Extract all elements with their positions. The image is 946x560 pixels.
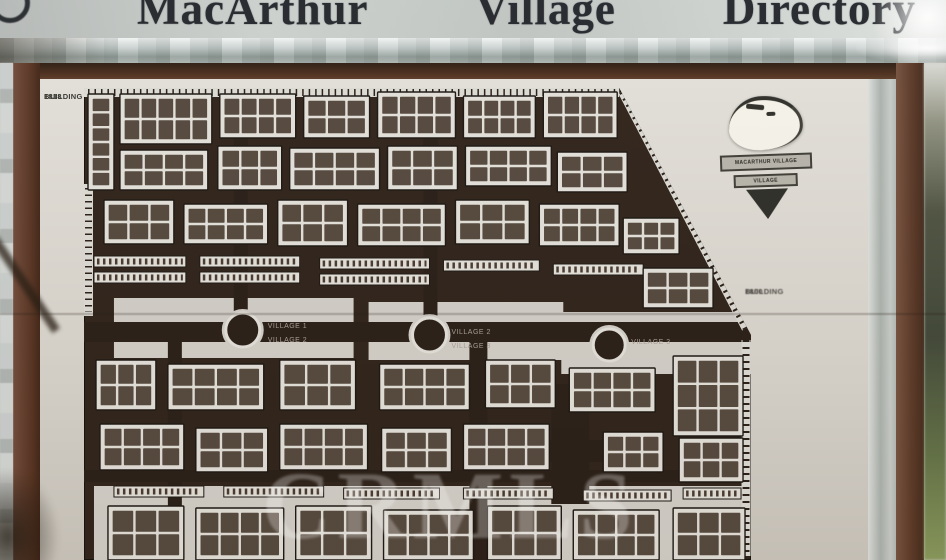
building-unit (136, 386, 151, 405)
building-unit (548, 116, 562, 133)
village-label: VILLAGE 3 (451, 343, 490, 350)
building-unit (527, 429, 544, 446)
label-1818-word: BUILDING (44, 92, 83, 102)
building-unit (418, 97, 433, 114)
emblem-banner-bottom: VILLAGE (734, 173, 798, 188)
building-unit (159, 99, 174, 118)
building-unit (562, 226, 578, 241)
building-unit (193, 120, 208, 139)
building-unit (699, 513, 718, 533)
building-unit (633, 373, 650, 389)
building-unit (125, 155, 143, 169)
sign-frame-right (896, 63, 924, 560)
village-label: VILLAGE 3 (631, 339, 670, 346)
building-unit (510, 167, 527, 181)
building-unit (201, 451, 220, 467)
building-unit (608, 437, 623, 451)
building-unit (384, 388, 402, 405)
building-unit (201, 513, 219, 533)
building-unit (222, 169, 239, 185)
building-unit (224, 117, 239, 133)
building-unit (720, 385, 739, 407)
building-unit (548, 97, 562, 114)
building-unit (482, 223, 502, 239)
building-unit (490, 365, 509, 383)
building-unit (699, 361, 718, 383)
building-unit (307, 365, 328, 384)
building-unit (165, 155, 183, 169)
building-unit (118, 386, 133, 405)
building-unit (678, 385, 697, 407)
building-unit (276, 117, 291, 133)
building-unit (159, 511, 180, 532)
building-unit (185, 155, 203, 169)
building-unit (565, 116, 579, 133)
sign-header: MacArthur Village Directory (0, 0, 946, 38)
metal-band (0, 38, 946, 63)
building-unit (348, 118, 365, 133)
building-unit (244, 451, 263, 467)
building-unit (130, 205, 149, 221)
building-unit (532, 365, 551, 383)
building-unit (470, 167, 487, 181)
building-unit (189, 209, 206, 223)
building-unit (151, 223, 170, 239)
building-unit (324, 224, 343, 241)
building-unit (684, 461, 701, 477)
building-unit (628, 223, 642, 235)
building-unit (684, 443, 701, 459)
building-unit (109, 223, 128, 239)
building-unit (598, 97, 612, 114)
building-unit (284, 386, 305, 405)
building-unit (562, 173, 581, 187)
building-unit (124, 448, 141, 465)
building-unit (460, 205, 480, 221)
building-unit (125, 99, 140, 118)
building-unit (227, 209, 244, 223)
building-unit (413, 169, 432, 185)
building-unit (505, 223, 525, 239)
building-unit (426, 388, 444, 405)
building-unit (336, 153, 354, 168)
building-unit (580, 226, 596, 241)
building-unit (544, 226, 560, 241)
building-unit (357, 153, 375, 168)
building-unit (392, 151, 411, 167)
mls-watermark: CRMLS (262, 450, 639, 560)
sign-title: MacArthur Village Directory (0, 0, 946, 38)
building-unit (151, 205, 170, 221)
building-unit (690, 273, 709, 287)
building-unit (460, 223, 480, 239)
building-unit (508, 429, 525, 446)
building-unit (580, 209, 596, 224)
building-unit (628, 237, 642, 249)
building-unit (195, 388, 215, 405)
building-unit (400, 97, 415, 114)
building-unit (217, 388, 237, 405)
building-unit (93, 128, 110, 140)
building-unit (303, 205, 322, 222)
building-unit (511, 385, 530, 403)
building-unit (643, 437, 658, 451)
building-unit (644, 237, 658, 249)
building-unit (544, 209, 560, 224)
building-unit (201, 535, 219, 555)
building-unit (136, 365, 151, 384)
building-unit (357, 170, 375, 185)
building-unit (484, 101, 498, 116)
building-unit (294, 153, 312, 168)
building-unit (599, 226, 615, 241)
photo-wire-line (0, 313, 946, 315)
building-unit (423, 209, 441, 224)
building-unit (604, 157, 623, 171)
building-unit (490, 385, 509, 403)
label-1800-word: BUILDING (745, 287, 784, 297)
building-unit (643, 453, 658, 467)
building-unit (613, 391, 630, 407)
building-unit (162, 448, 179, 465)
building-unit (241, 535, 259, 555)
building-unit (637, 515, 654, 534)
building-unit (195, 369, 215, 386)
building-unit (532, 385, 551, 403)
building-unit (583, 157, 602, 171)
building-unit (336, 170, 354, 185)
building-unit (241, 169, 258, 185)
title-word-village: Village (476, 0, 616, 35)
building-unit (405, 388, 423, 405)
building-unit (490, 167, 507, 181)
building-unit (145, 171, 163, 185)
building-unit (189, 225, 206, 239)
building-unit (246, 225, 263, 239)
building-unit (241, 513, 259, 533)
building-unit (93, 99, 110, 111)
building-unit (426, 369, 444, 386)
building-unit (328, 118, 345, 133)
building-unit (581, 116, 595, 133)
building-unit (468, 101, 482, 116)
building-unit (315, 170, 333, 185)
building-unit (118, 365, 133, 384)
building-unit (678, 535, 697, 555)
building-unit (721, 535, 740, 555)
building-unit (136, 511, 157, 532)
building-unit (93, 114, 110, 126)
building-unit (345, 429, 363, 446)
circle-logo-icon (0, 0, 30, 23)
roundabout (413, 318, 447, 352)
directory-sign-photo: MacArthur Village Directory VILLAGE 1VIL… (0, 0, 946, 560)
metal-band-streaks (0, 38, 946, 63)
building-unit (244, 433, 263, 449)
photo-shadow-bottom-left (0, 468, 60, 560)
building-unit (241, 151, 258, 167)
building-unit (325, 429, 343, 446)
building-unit (362, 226, 380, 241)
building-unit (101, 386, 116, 405)
building-unit (176, 99, 191, 118)
building-unit (105, 429, 122, 446)
sign-frame-top (13, 63, 911, 79)
building-unit (143, 448, 160, 465)
building-unit (113, 511, 134, 532)
village-label: VILLAGE 2 (451, 329, 490, 336)
building-unit (529, 167, 546, 181)
building-unit (208, 225, 225, 239)
building-unit (482, 205, 502, 221)
building-unit (699, 409, 718, 431)
building-unit (259, 117, 274, 133)
building-unit (594, 391, 611, 407)
building-unit (599, 209, 615, 224)
building-unit (722, 443, 739, 459)
building-unit (142, 120, 157, 139)
building-unit (468, 429, 485, 446)
building-unit (259, 99, 274, 115)
building-unit (484, 118, 498, 133)
building-unit (222, 151, 239, 167)
building-unit (648, 273, 667, 287)
building-unit (222, 433, 241, 449)
building-unit (392, 169, 411, 185)
building-unit (574, 391, 591, 407)
building-unit (435, 116, 450, 133)
building-unit (446, 388, 464, 405)
building-unit (330, 365, 351, 384)
building-unit (382, 116, 397, 133)
building-unit (407, 433, 426, 449)
building-unit (308, 118, 325, 133)
building-unit (142, 99, 157, 118)
building-unit (362, 209, 380, 224)
building-unit (690, 289, 709, 303)
building-unit (721, 513, 740, 533)
building-unit (413, 151, 432, 167)
building-unit (661, 237, 675, 249)
building-unit (221, 535, 239, 555)
building-unit (562, 157, 581, 171)
building-unit (284, 429, 302, 446)
building-unit (644, 223, 658, 235)
building-unit (581, 97, 595, 114)
building-unit (418, 116, 433, 133)
building-unit (403, 226, 421, 241)
building-unit (222, 451, 241, 467)
building-unit (386, 433, 405, 449)
building-unit (669, 289, 688, 303)
building-unit (185, 171, 203, 185)
building-unit (282, 205, 301, 222)
building-unit (529, 151, 546, 165)
building-unit (383, 226, 401, 241)
building-unit (403, 209, 421, 224)
building-unit (699, 385, 718, 407)
building-unit (162, 429, 179, 446)
building-unit (382, 97, 397, 114)
building-unit (93, 173, 110, 185)
building-unit (324, 205, 343, 222)
building-unit (626, 437, 641, 451)
sign-metal-trim-right (868, 79, 896, 560)
building-unit (193, 99, 208, 118)
building-unit (143, 429, 160, 446)
building-unit (93, 158, 110, 170)
building-unit (423, 226, 441, 241)
building-unit (242, 117, 257, 133)
building-unit (173, 388, 193, 405)
building-unit (217, 369, 237, 386)
building-unit (124, 429, 141, 446)
building-unit (720, 361, 739, 383)
building-unit (562, 209, 578, 224)
building-unit (308, 101, 325, 116)
village-label: VILLAGE 2 (268, 337, 307, 344)
building-unit (239, 369, 259, 386)
building-unit (284, 365, 305, 384)
building-unit (176, 120, 191, 139)
roundabout (593, 329, 625, 361)
building-unit (384, 369, 402, 386)
building-unit (227, 225, 244, 239)
building-unit (661, 223, 675, 235)
building-unit (633, 391, 650, 407)
building-unit (93, 143, 110, 155)
building-unit (470, 151, 487, 165)
building-unit (239, 388, 259, 405)
building-unit (604, 173, 623, 187)
building-unit (159, 534, 180, 555)
building-unit (101, 365, 116, 384)
building-unit (330, 386, 351, 405)
roundabout (226, 313, 260, 347)
parking-strip-left (84, 184, 93, 316)
emblem-triangle (746, 188, 789, 219)
building-unit (260, 169, 277, 185)
building-unit (400, 116, 415, 133)
building-unit (488, 429, 505, 446)
building-unit (165, 171, 183, 185)
building-unit (130, 223, 149, 239)
building-unit (246, 209, 263, 223)
building-unit (303, 224, 322, 241)
building-unit (276, 99, 291, 115)
building-unit (221, 513, 239, 533)
building-unit (201, 433, 220, 449)
building-unit (242, 99, 257, 115)
building-unit (224, 99, 239, 115)
building-unit (125, 120, 140, 139)
building-unit (583, 173, 602, 187)
building-unit (328, 101, 345, 116)
building-unit (510, 151, 527, 165)
village-label: VILLAGE 1 (268, 323, 307, 330)
building-unit (517, 118, 531, 133)
building-unit (678, 361, 697, 383)
building-unit (446, 369, 464, 386)
building-unit (699, 535, 718, 555)
building-unit (383, 209, 401, 224)
building-unit (490, 151, 507, 165)
building-unit (703, 443, 720, 459)
building-unit (678, 409, 697, 431)
building-unit (159, 120, 174, 139)
building-unit (105, 448, 122, 465)
building-unit (517, 101, 531, 116)
building-unit (637, 536, 654, 555)
building-unit (501, 118, 515, 133)
building-unit (501, 101, 515, 116)
building-unit (294, 170, 312, 185)
photo-glare-top-right (872, 0, 946, 70)
building-unit (173, 369, 193, 386)
building-unit (669, 273, 688, 287)
building-unit (435, 97, 450, 114)
building-unit (678, 513, 697, 533)
building-unit (315, 153, 333, 168)
building-unit (722, 461, 739, 477)
building-unit (305, 429, 323, 446)
building-unit (136, 534, 157, 555)
title-word-macarthur: MacArthur (137, 0, 368, 35)
building-unit (434, 169, 453, 185)
building-unit (208, 209, 225, 223)
building-unit (720, 409, 739, 431)
building-unit (505, 205, 525, 221)
building-unit (434, 151, 453, 167)
emblem-bird-marking (766, 112, 775, 116)
photo-foliage-right (924, 63, 946, 560)
emblem-bird-icon (728, 95, 804, 152)
metal-band-shadow (0, 38, 110, 63)
building-unit (468, 118, 482, 133)
building-unit (428, 433, 447, 449)
building-unit (260, 151, 277, 167)
building-unit (565, 97, 579, 114)
building-unit (598, 116, 612, 133)
building-unit (145, 155, 163, 169)
building-unit (125, 171, 143, 185)
building-unit (594, 373, 611, 389)
building-unit (574, 373, 591, 389)
building-unit (348, 101, 365, 116)
building-unit (282, 224, 301, 241)
building-unit (648, 289, 667, 303)
building-unit (307, 386, 328, 405)
building-unit (109, 205, 128, 221)
building-unit (703, 461, 720, 477)
building-unit (511, 365, 530, 383)
macarthur-village-emblem: MACARTHUR VILLAGE VILLAGE (718, 88, 819, 231)
building-unit (113, 534, 134, 555)
building-unit (613, 373, 630, 389)
emblem-banner-top: MACARTHUR VILLAGE (720, 152, 813, 171)
building-unit (405, 369, 423, 386)
